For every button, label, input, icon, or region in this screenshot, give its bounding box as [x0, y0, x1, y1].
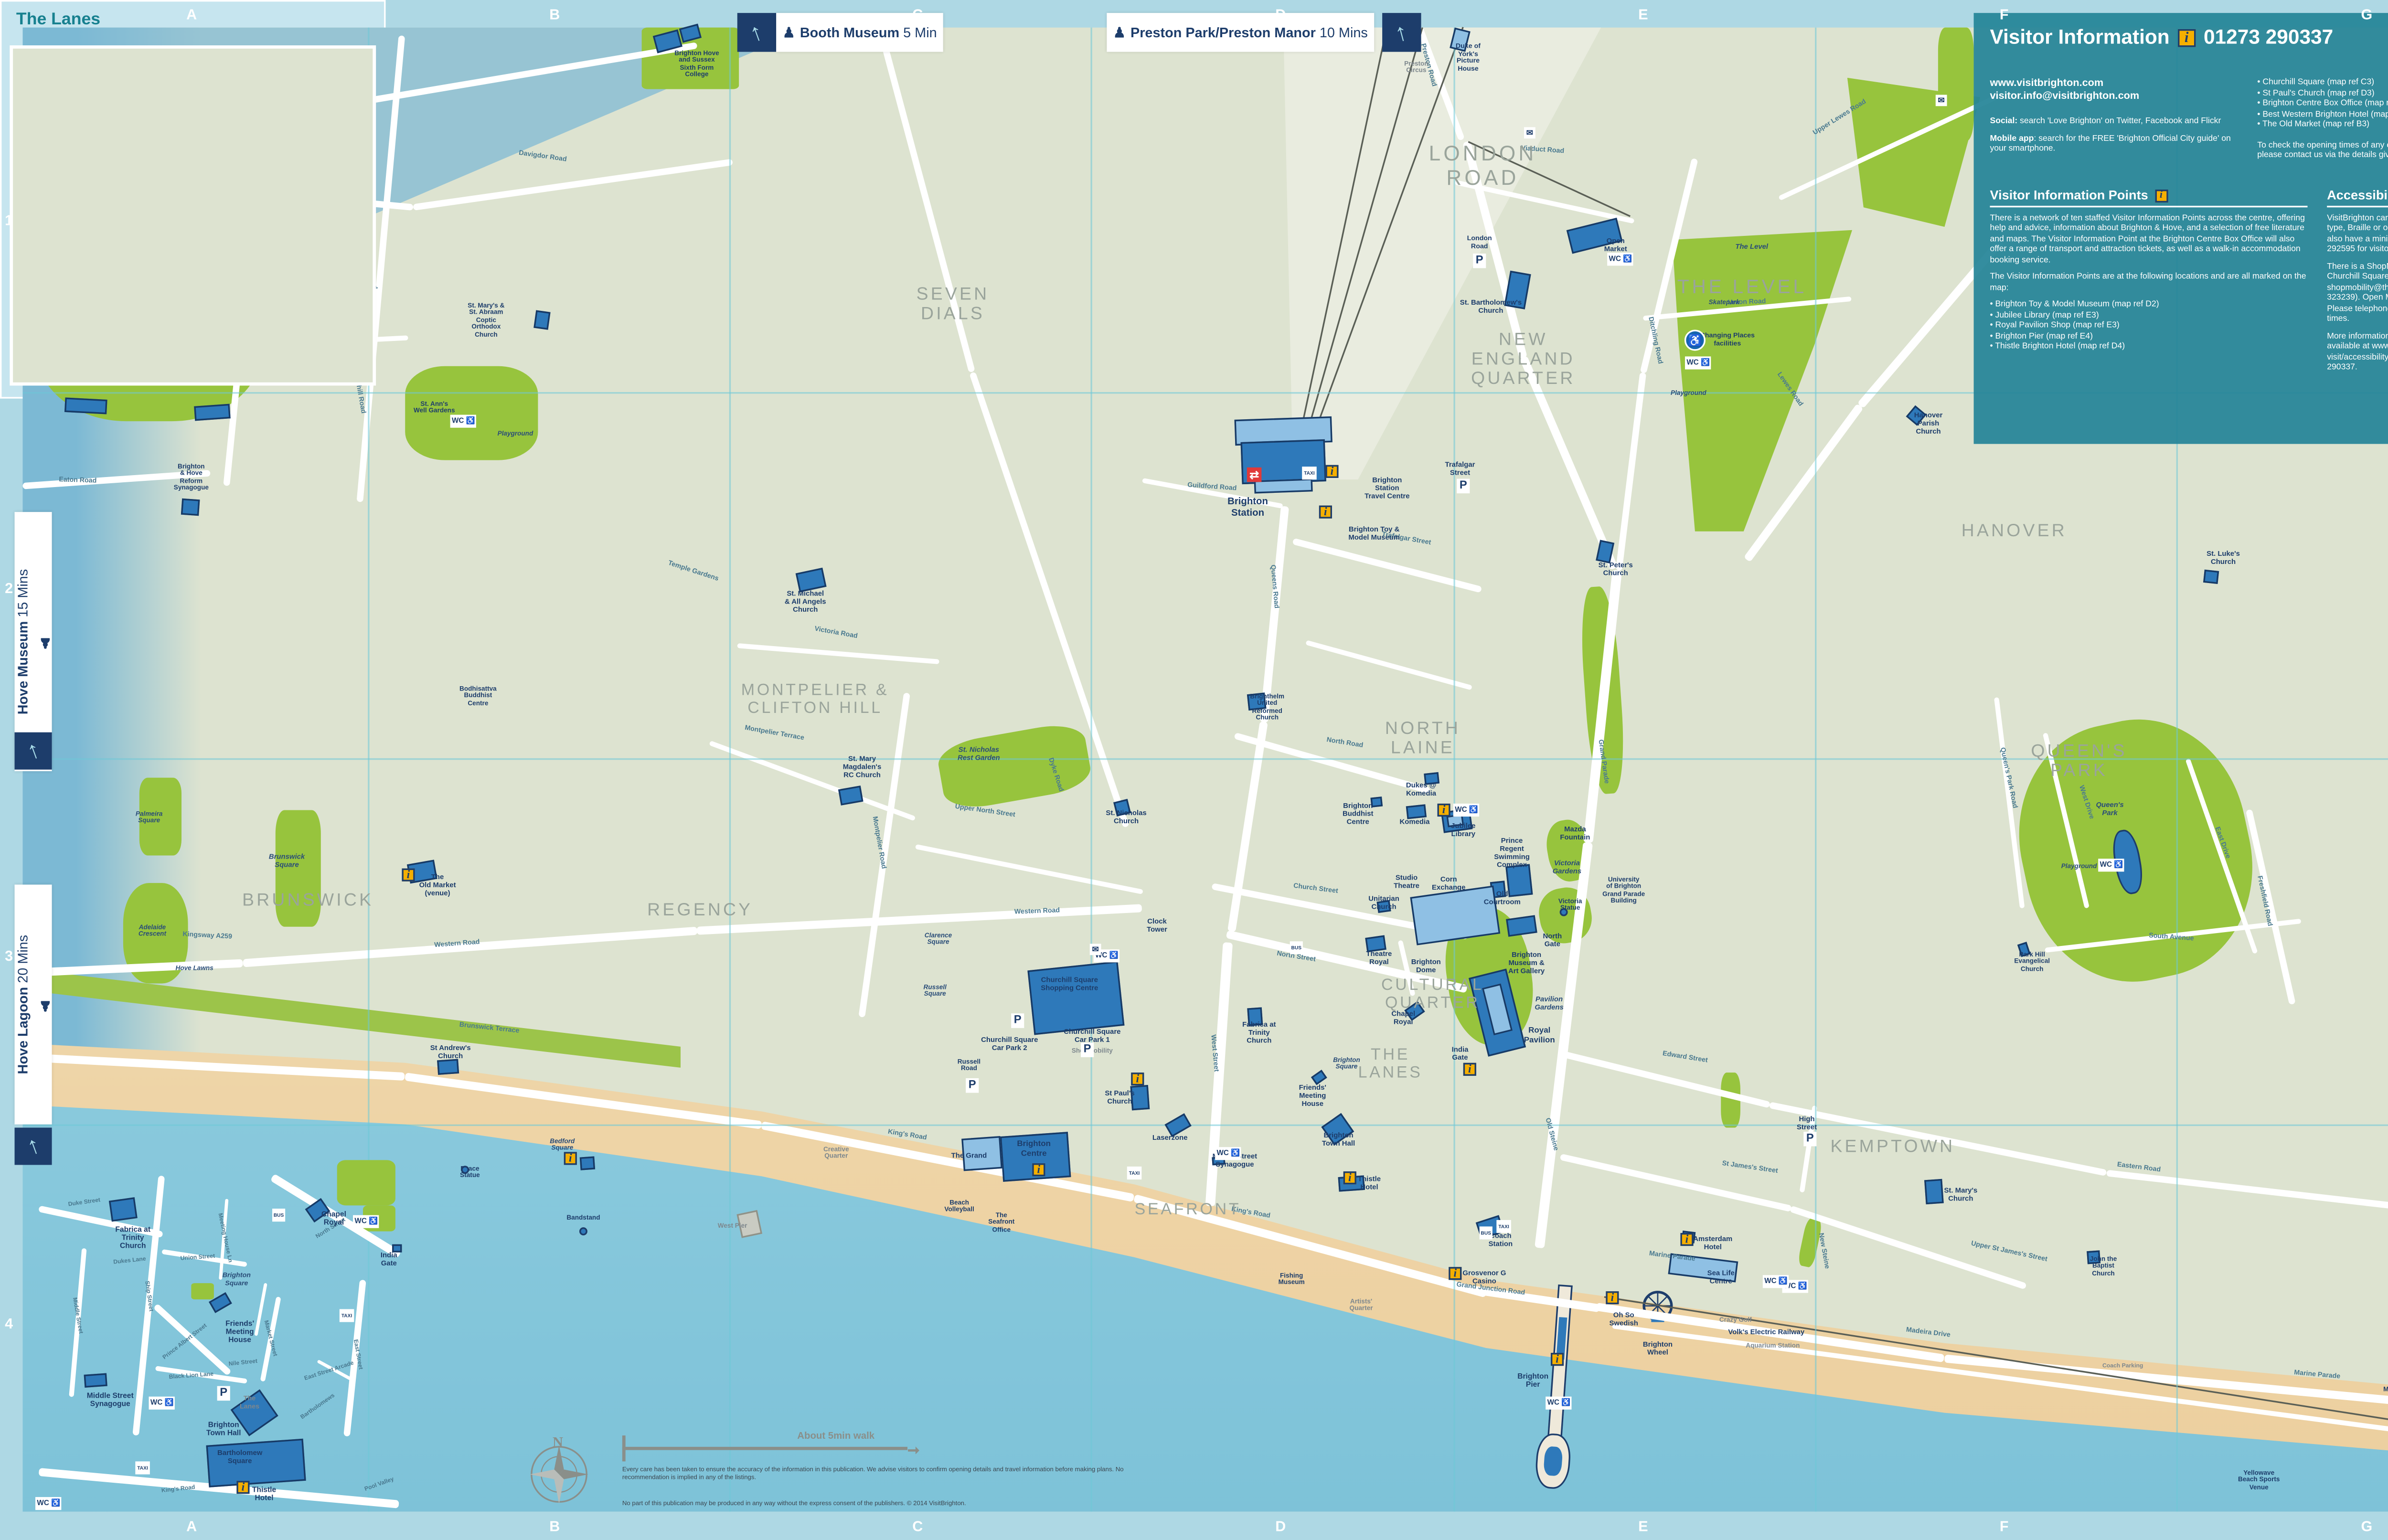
- label-the: TheSeafrontOffice: [988, 1212, 1014, 1234]
- label-playground: Playground: [498, 431, 533, 438]
- list-item: • Jubilee Library (map ref E3): [1990, 310, 2307, 321]
- copyright-text: No part of this publication may be produ…: [622, 1498, 1165, 1507]
- i-icon: i: [1325, 465, 1338, 478]
- disclaimer-text: Every care has been taken to ensure the …: [622, 1465, 1165, 1481]
- district-kemptown: KEMPTOWN: [1830, 1137, 1955, 1157]
- walker-icon: ♟: [36, 997, 52, 1013]
- list-item: • Best Western Brighton Hotel (map ref B…: [2257, 109, 2388, 120]
- grid-line: [729, 28, 730, 1512]
- bus-icon: BUS: [1480, 1226, 1492, 1239]
- p-icon: P: [1803, 1132, 1816, 1147]
- bus-icon: BUS: [1290, 941, 1303, 954]
- list-item: • The Old Market (map ref B3): [2257, 120, 2388, 130]
- label-brighton: BrightonStationTravel Centre: [1365, 478, 1409, 501]
- inset-label-thistle: ThistleHotel: [252, 1486, 276, 1502]
- hove-lagoon-arrow-icon: ↑: [15, 1127, 52, 1165]
- hove-museum-arrow-icon: ↑: [15, 733, 52, 770]
- dot-icon: [1560, 908, 1568, 916]
- banner-booth-label: Booth Museum: [800, 24, 899, 41]
- wc-icon: WC ♿: [35, 1497, 62, 1510]
- taxi-icon: TAXI: [1302, 467, 1317, 479]
- label-queen-s: Queen'sPark: [2096, 802, 2123, 818]
- grid-letter-D: D: [1275, 1518, 1286, 1534]
- label-churchill-square: Churchill SquareCar Park 2: [981, 1037, 1038, 1053]
- info-icon: i: [2178, 28, 2196, 46]
- banner-booth-time: 5 Min: [899, 24, 937, 41]
- panel-vip-paragraph2: The Visitor Information Points are at th…: [1990, 272, 2307, 293]
- label-west-pier: West Pier: [718, 1223, 747, 1230]
- label-oh-so: Oh SoSwedish: [1609, 1313, 1638, 1328]
- grid-letter-E: E: [1638, 1518, 1648, 1534]
- label-mazda: MazdaFountain: [1560, 827, 1590, 842]
- list-item: • Brighton Toy & Model Museum (map ref D…: [1990, 300, 2307, 310]
- grid-line: [1815, 28, 1816, 1512]
- walker-icon: ♟: [36, 634, 52, 650]
- grid-letter-G: G: [2361, 7, 2372, 23]
- panel-website-link[interactable]: www.visitbrighton.com: [1990, 78, 2103, 89]
- panel-accessibility-p3: More information on access in the city i…: [2327, 331, 2388, 373]
- label-park-hill: Park HillEvangelicalChurch: [2014, 952, 2050, 973]
- list-item: • Brighton Centre Box Office (map ref C4…: [2257, 99, 2388, 109]
- label-brighton: BrightonStation: [1227, 498, 1268, 520]
- grid-letter-A: A: [186, 1518, 197, 1534]
- district-new: NEWENGLANDQUARTER: [1471, 330, 1575, 389]
- label-the-level: The Level: [1735, 244, 1768, 252]
- grid-letter-B: B: [549, 7, 560, 23]
- dot-icon: [579, 1227, 587, 1235]
- banner-hove-museum-time: 15 Mins: [15, 569, 31, 621]
- walker-icon: ♟: [783, 23, 795, 41]
- label-bodhisattva: BodhisattvaBuddhistCentre: [459, 686, 497, 707]
- label-brighton-toy: Brighton Toy &Model Museum: [1348, 527, 1400, 542]
- street-western-road: Western Road: [1014, 906, 1060, 915]
- label-brighton: BrightonSquare: [1333, 1057, 1360, 1072]
- panel-social-label: Social:: [1990, 117, 2017, 126]
- building: [2203, 570, 2219, 584]
- scale-bar: [622, 1447, 907, 1451]
- walker-icon: ♟: [1113, 23, 1126, 41]
- label-hove-lawns: Hove Lawns: [176, 965, 213, 972]
- district-seven: SEVENDIALS: [917, 285, 990, 324]
- inset-label-middle-street: Middle StreetSynagogue: [87, 1391, 134, 1408]
- label-the-grand: The Grand: [951, 1153, 987, 1161]
- label-amsterdam: AmsterdamHotel: [1693, 1236, 1732, 1252]
- label-india: IndiaGate: [1452, 1047, 1469, 1062]
- label-royal: RoyalPavilion: [1524, 1028, 1555, 1046]
- inset-park: [191, 1283, 214, 1299]
- i-icon: i: [1438, 804, 1450, 817]
- banner-hove-lagoon-time: 20 Mins: [15, 935, 31, 987]
- inset-title: The Lanes: [16, 10, 100, 29]
- label-adelaide: AdelaideCrescent: [139, 924, 166, 939]
- building: [64, 397, 107, 414]
- grid-letter-D: D: [1275, 7, 1286, 23]
- building: [580, 1156, 595, 1170]
- building: [437, 1059, 459, 1075]
- the-lanes-inset: The Lanes: [0, 0, 386, 399]
- wc-icon: WC ♿: [1607, 253, 1634, 266]
- label-brighthelm: BrighthelmUnitedReformedChurch: [1250, 693, 1284, 722]
- panel-accessibility-section: Accessibility VisitBrighton can supply i…: [2327, 188, 2388, 380]
- label-yellowave: YellowaveBeach SportsVenue: [2238, 1470, 2280, 1491]
- visitor-information-panel: Visitor Information i 01273 290337 www.v…: [1974, 13, 2388, 444]
- list-item: • Brighton Pier (map ref E4): [1990, 331, 2307, 342]
- panel-social-text: search 'Love Brighton' on Twitter, Faceb…: [2017, 117, 2221, 126]
- grid-letter-A: A: [186, 7, 197, 23]
- label-brighton: BrightonMuseum &Art Gallery: [1508, 952, 1545, 976]
- building: [533, 310, 550, 329]
- label-brighton: BrightonWheel: [1643, 1342, 1673, 1358]
- banner-hove-lagoon-label: Hove Lagoon: [15, 987, 31, 1074]
- label-russell: RussellSquare: [924, 984, 947, 998]
- label-creative: CreativeQuarter: [823, 1147, 849, 1161]
- wc-icon: WC ♿: [1763, 1275, 1790, 1288]
- grid-letter-F: F: [2000, 7, 2009, 23]
- building: [1254, 478, 1313, 493]
- district-seafront: SEAFRONT: [1135, 1201, 1241, 1219]
- preston-park-arrow-icon: ↑: [1382, 13, 1421, 52]
- inset-label-fabrica-at: Fabrica atTrinityChurch: [115, 1225, 150, 1250]
- label-russell: RussellRoad: [958, 1059, 981, 1073]
- wc-icon: WC ♿: [1215, 1147, 1242, 1160]
- scale-arrow: ➞: [907, 1442, 920, 1460]
- label-clarence: ClarenceSquare: [925, 933, 952, 947]
- inset-label-the: TheLanes: [240, 1395, 259, 1411]
- taxi-icon: TAXI: [1127, 1167, 1142, 1179]
- grid-line: [1453, 28, 1454, 1512]
- street-eaton-road: Eaton Road: [59, 475, 96, 484]
- i-icon: i: [1606, 1291, 1619, 1304]
- label-volk-s-electric-railway: Volk's Electric Railway: [1728, 1329, 1804, 1338]
- grid-number-2: 2: [5, 580, 13, 596]
- inset-map: [10, 45, 376, 386]
- label-st-mary-s: St. Mary's &St. AbraamCopticOrthodoxChur…: [468, 303, 504, 339]
- panel-accessibility-p2: There is a ShopMobility ♿ service locate…: [2327, 262, 2388, 325]
- label-old: OldCourtroom: [1484, 891, 1521, 907]
- panel-contact: www.visitbrighton.com visitor.info@visit…: [1990, 78, 2236, 161]
- label-fabrica-at: Fabrica atTrinityChurch: [1242, 1022, 1276, 1046]
- banner-hove-lagoon: Hove Lagoon 20 Mins ♟: [15, 885, 52, 1125]
- label-prince: PrinceRegentSwimmingComplex: [1494, 838, 1530, 870]
- label-bandstand: Bandstand: [566, 1215, 600, 1222]
- i-icon: i: [564, 1152, 577, 1165]
- i-icon: i: [236, 1481, 249, 1494]
- label-university: Universityof BrightonGrand ParadeBuildin…: [1602, 877, 1645, 906]
- banner-preston-label: Preston Park/Preston Manor: [1130, 24, 1316, 41]
- building: [1027, 961, 1124, 1035]
- label-playground: Playground: [2061, 863, 2097, 871]
- district-regency: REGENCY: [647, 901, 753, 920]
- label-sea-life: Sea LifeCentre: [1707, 1270, 1735, 1286]
- label-playground: Playground: [1671, 390, 1706, 397]
- grid-letter-B: B: [549, 1518, 560, 1534]
- rail-icon: ⇄: [1247, 467, 1262, 482]
- inset-label-brighton: BrightonSquare: [223, 1272, 251, 1287]
- post-icon: ✉: [1936, 95, 1947, 106]
- label-preston: PrestonCircus: [1404, 61, 1429, 75]
- inset-label-friends: Friends'MeetingHouse: [225, 1319, 254, 1344]
- i-icon: i: [402, 869, 415, 882]
- grid-number-3: 3: [5, 948, 13, 964]
- label-high: HighStreet: [1797, 1116, 1817, 1132]
- panel-check-note: To check the opening times of any of the…: [2257, 140, 2388, 161]
- label-brighton: BrightonBuddhistCentre: [1343, 803, 1374, 827]
- label-fishing: FishingMuseum: [1279, 1273, 1305, 1287]
- p-icon: P: [966, 1078, 979, 1093]
- p-icon: P: [1473, 254, 1486, 268]
- label-st-nicholas: St. NicholasChurch: [1106, 810, 1146, 826]
- panel-vip-paragraph: There is a network of ten staffed Visito…: [1990, 213, 2307, 266]
- scale-bar-tick: [622, 1435, 626, 1461]
- grid-letter-C: C: [912, 1518, 923, 1534]
- panel-accessibility-p1: VisitBrighton can supply information in …: [2327, 213, 2388, 255]
- label-theatre: TheatreRoyal: [1366, 951, 1392, 967]
- panel-title: Visitor Information: [1990, 26, 2169, 49]
- label-palmeira: PalmeiraSquare: [136, 811, 163, 825]
- label-brunswick: BrunswickSquare: [269, 854, 305, 870]
- i-icon: i: [1463, 1063, 1476, 1076]
- label-london: LondonRoad: [1467, 235, 1492, 251]
- label-brighton: BrightonPier: [1517, 1372, 1548, 1389]
- panel-vip-title: Visitor Information Points: [1990, 188, 2148, 203]
- i-icon: i: [1131, 1073, 1144, 1085]
- label-beach: BeachVolleyball: [944, 1200, 974, 1214]
- inset-label-brighton: BrightonTown Hall: [206, 1421, 241, 1437]
- grid-letter-G: G: [2361, 1518, 2372, 1534]
- district-london: LONDONROAD: [1429, 141, 1537, 190]
- building: [181, 499, 200, 516]
- label-studio: StudioTheatre: [1394, 875, 1419, 891]
- inset-label-chapel: ChapelRoyal: [321, 1210, 346, 1227]
- label-st-mary: St. MaryMagdalen'sRC Church: [843, 756, 882, 780]
- label-st-andrew-s: St Andrew'sChurch: [430, 1045, 471, 1061]
- i-icon: i: [1343, 1171, 1356, 1184]
- bus-icon: BUS: [272, 1209, 285, 1221]
- label-st-peter-s: St. Peter'sChurch: [1599, 563, 1633, 578]
- label-st-nicholas: St. NicholasRest Garden: [958, 747, 1000, 763]
- i-icon: i: [1032, 1163, 1045, 1176]
- grid-letter-E: E: [1638, 7, 1648, 23]
- label-aquarium-station: Aquarium Station: [1746, 1343, 1800, 1350]
- brighton-visitor-map: Old Shoreham Road A270Davigdor RoadCromw…: [0, 0, 2388, 1539]
- banner-hove-museum-label: Hove Museum: [15, 621, 31, 714]
- list-item: • St Paul's Church (map ref D3): [2257, 88, 2388, 99]
- scale-label: About 5min walk: [797, 1432, 874, 1442]
- grid-number-4: 4: [5, 1316, 13, 1332]
- panel-vip-list: • Brighton Toy & Model Museum (map ref D…: [1990, 300, 2307, 352]
- label-crazy-golf: Crazy Golf: [1719, 1317, 1752, 1324]
- panel-vip-section: Visitor Information Points i There is a …: [1990, 188, 2307, 359]
- label-thistle: ThistleHotel: [1358, 1177, 1381, 1192]
- label-pavilion: PavilionGardens: [1535, 997, 1563, 1012]
- taxi-icon: TAXI: [340, 1309, 354, 1322]
- panel-bullet-list: • Churchill Square (map ref C3)• St Paul…: [2257, 78, 2388, 130]
- label-friends: Friends'MeetingHouse: [1299, 1085, 1326, 1109]
- label-laserzone: Laserzone: [1152, 1135, 1188, 1143]
- grid-letter-F: F: [2000, 1518, 2009, 1534]
- wc-icon: WC ♿: [450, 415, 477, 428]
- post-icon: ✉: [1524, 127, 1535, 138]
- wc-icon: WC ♿: [1546, 1397, 1572, 1410]
- panel-email-link[interactable]: visitor.info@visitbrighton.com: [1990, 91, 2139, 102]
- panel-phone: 01273 290337: [2204, 26, 2333, 49]
- label-hanover: HanoverParishChurch: [1914, 413, 1943, 436]
- building: [1924, 1179, 1944, 1204]
- label-grosvenor-g: Grosvenor GCasino: [1462, 1270, 1506, 1286]
- booth-museum-arrow-icon: ↑: [737, 13, 776, 52]
- taxi-icon: TAXI: [1496, 1220, 1511, 1233]
- grid-number-1: 1: [5, 212, 13, 228]
- wc-icon: WC ♿: [353, 1215, 380, 1228]
- building: [84, 1373, 107, 1388]
- panel-accessibility-title: Accessibility: [2327, 188, 2388, 203]
- panel-mobile-label: Mobile app: [1990, 134, 2034, 143]
- pier-deck: [1547, 1285, 1573, 1447]
- i-icon: i: [1449, 1267, 1461, 1280]
- district-montpelier: MONTPELIER &CLIFTON HILL: [741, 682, 889, 718]
- wc-icon: WC ♿: [2098, 859, 2125, 871]
- list-item: • Churchill Square (map ref C3): [2257, 78, 2388, 88]
- inset-park: [337, 1160, 395, 1205]
- banner-preston-park: ♟ Preston Park/Preston Manor 10 Mins: [1107, 13, 1374, 52]
- label-north: NorthGate: [1543, 934, 1562, 949]
- list-item: • Thistle Brighton Hotel (map ref D4): [1990, 342, 2307, 352]
- p-icon: P: [1457, 479, 1470, 494]
- label-unitarian: UnitarianChurch: [1368, 896, 1399, 912]
- label-john-the: John theBaptistChurch: [2090, 1256, 2117, 1278]
- wc-icon: WC ♿: [149, 1397, 176, 1410]
- label-chapel: ChapelRoyal: [1391, 1011, 1415, 1027]
- label-clock: ClockTower: [1147, 919, 1167, 935]
- label-jubilee: JubileeLibrary: [1451, 823, 1475, 839]
- label-coach-parking: Coach Parking: [2102, 1362, 2143, 1369]
- p-icon: P: [1081, 1042, 1094, 1057]
- i-icon: i: [1319, 506, 1332, 519]
- label-dukes: Dukes @Komedia: [1406, 783, 1436, 798]
- district-queen-s: QUEEN'SPARK: [2031, 742, 2127, 781]
- label-brighton-hove: Brighton Hoveand SussexSixth FormCollege: [674, 50, 719, 79]
- label-open: OpenMarket: [1604, 238, 1627, 254]
- label-st-ann-s: St. Ann'sWell Gardens: [414, 401, 455, 415]
- grid-line: [1090, 28, 1091, 1512]
- district-the: THELANES: [1358, 1047, 1423, 1083]
- label-victoria: VictoriaGardens: [1553, 860, 1581, 876]
- i-icon: i: [1551, 1353, 1564, 1366]
- list-item: • Royal Pavilion Shop (map ref E3): [1990, 321, 2307, 331]
- inset-label-india: IndiaGate: [381, 1253, 397, 1268]
- inset-label-bartholomew: BartholomewSquare: [217, 1450, 262, 1466]
- compass-rose-icon: N: [525, 1432, 593, 1507]
- label-changing-places: Changing Placesfacilities: [1700, 333, 1755, 348]
- wc-icon: WC ♿: [1453, 804, 1480, 817]
- label-trafalgar: TrafalgarStreet: [1445, 462, 1475, 478]
- grid-letter-C: C: [912, 7, 923, 23]
- label-brighton: BrightonTown Hall: [1322, 1133, 1355, 1148]
- district-hanover: HANOVER: [1962, 522, 2067, 542]
- cp-icon: ♿: [1684, 329, 1706, 350]
- taxi-icon: TAXI: [135, 1461, 150, 1474]
- label-duke-of: Duke ofYork'sPictureHouse: [1456, 43, 1481, 74]
- banner-preston-time: 10 Mins: [1316, 24, 1368, 41]
- post-icon: ✉: [1090, 944, 1101, 955]
- label-artists: Artists'Quarter: [1350, 1299, 1373, 1313]
- panel-title-row: Visitor Information i 01273 290337: [1990, 26, 2388, 49]
- building: [109, 1197, 138, 1221]
- label-brighton: BrightonCentre: [1017, 1141, 1051, 1159]
- label-komedia: Komedia: [1400, 819, 1430, 827]
- i-icon: i: [1680, 1233, 1693, 1246]
- p-icon: P: [1011, 1013, 1024, 1028]
- district-cultural: CULTURALQUARTER: [1381, 977, 1484, 1013]
- panel-vip-locations: • Churchill Square (map ref C3)• St Paul…: [2257, 78, 2388, 168]
- dot-icon: [461, 1166, 469, 1174]
- label-skatepark: Skatepark: [1709, 299, 1740, 307]
- p-icon: P: [217, 1386, 230, 1401]
- label-st-paul-s: St Paul'sChurch: [1105, 1091, 1134, 1106]
- grid-line: [23, 1125, 2388, 1126]
- info-icon: i: [2154, 189, 2167, 202]
- label-st-bartholomew-s: St. Bartholomew'sChurch: [1460, 300, 1522, 316]
- label-brighton: BrightonDome: [1411, 959, 1441, 975]
- label-the: TheOld Market(venue): [419, 874, 456, 898]
- label-brighton: Brighton& HoveReformSynagogue: [174, 464, 209, 493]
- district-north: NORTHLAINE: [1385, 719, 1461, 758]
- district-brunswick: BRUNSWICK: [242, 891, 373, 911]
- label-st-mary-s: St. Mary'sChurch: [1944, 1188, 1977, 1203]
- label-st-michael: St. Michael& All AngelsChurch: [785, 591, 826, 615]
- wc-icon: WC ♿: [1685, 356, 1712, 369]
- district-the-level: THE LEVEL: [1677, 276, 1807, 298]
- building: [194, 404, 231, 421]
- label-st-luke-s: St. Luke'sChurch: [2207, 551, 2240, 567]
- label-bedford: BedfordSquare: [550, 1138, 575, 1153]
- label-churchill-square: Churchill SquareShopping Centre: [1041, 977, 1098, 993]
- label-corn: CornExchange: [1432, 877, 1465, 892]
- building: [1406, 804, 1427, 819]
- label-madeira-lift: Madeira Lift: [2383, 1387, 2388, 1394]
